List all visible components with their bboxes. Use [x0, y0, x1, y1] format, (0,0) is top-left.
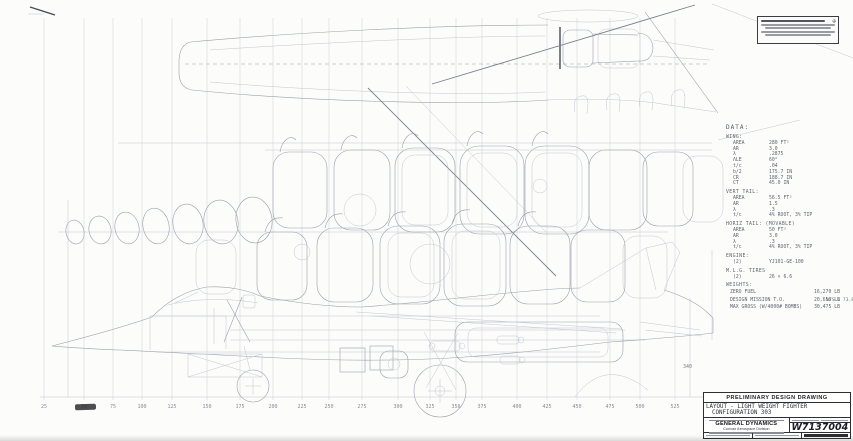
stamp-text-line [765, 27, 831, 29]
construction-lines [28, 7, 800, 397]
stamp-text-line [765, 34, 831, 36]
station-label: 525 [670, 404, 679, 410]
station-label: 200 [268, 404, 277, 410]
data-block: DATA: WING:AREA280 FT²AR3.0λ.2875ΛLE60°t… [726, 124, 850, 314]
data-row: (2)26 × 6.6 [726, 275, 850, 281]
data-row: t/c4% ROOT, 3% TIP [726, 213, 850, 219]
blueprint-sheet: ⊕ DATA: WING:AREA280 FT²AR3.0λ.2875ΛLE60… [0, 0, 853, 441]
stamp-seal-icon: ⊕ [832, 19, 836, 25]
station-label: 350 [451, 404, 460, 410]
station-label: 325 [425, 404, 434, 410]
title-block-header: PRELIMINARY DESIGN DRAWING [704, 393, 850, 403]
data-row: ZERO FUEL16,270 LB [726, 289, 850, 296]
data-row: t/c4% ROOT, 3% TIP [726, 245, 850, 251]
drawing-title-line2: CONFIGURATION 303 [704, 410, 850, 418]
stamp-text-line [761, 31, 835, 33]
station-label: 375 [477, 404, 486, 410]
data-section: M.L.G. TIRES(2)26 × 6.6 [726, 269, 850, 281]
station-label: 300 [393, 404, 402, 410]
title-block: PRELIMINARY DESIGN DRAWING LAYOUT - LIGH… [703, 392, 851, 439]
side-view [52, 242, 713, 417]
station-label: 75 [110, 404, 116, 410]
station-label: 250 [324, 404, 333, 410]
station-label: 175 [235, 404, 244, 410]
drawing-title-line1: LAYOUT - LIGHT WEIGHT FIGHTER [704, 403, 850, 410]
station-label: 400 [512, 404, 521, 410]
station-label: 425 [542, 404, 551, 410]
station-label: 150 [202, 404, 211, 410]
cross-sections [64, 90, 723, 306]
company-cell: GENERAL DYNAMICS Convair Aerospace Divis… [704, 418, 790, 432]
station-label: 500 [635, 404, 644, 410]
station-label: 475 [605, 404, 614, 410]
stamp-text-line [761, 20, 825, 22]
station-label: 25 [41, 404, 47, 410]
ink-smudge [75, 404, 96, 411]
data-block-heading: DATA: [726, 124, 850, 131]
title-block-footer [704, 433, 850, 439]
data-section: WEIGHTS:ZERO FUEL16,270 LBDESIGN MISSION… [726, 283, 850, 311]
footer-cell [704, 433, 753, 439]
data-row: CT45.0 IN [726, 181, 850, 187]
data-section: WING:AREA280 FT²AR3.0λ.2875ΛLE60°t/c.04b… [726, 135, 850, 187]
approval-stamp: ⊕ [757, 16, 839, 44]
data-row: (2)YJ101-GE-100 [726, 260, 850, 266]
footer-cell [753, 433, 802, 439]
footer-cell-stamped [802, 433, 850, 439]
data-section: ENGINE:(2)YJ101-GE-100 [726, 254, 850, 266]
drawing-number-cell: W7137004 [790, 418, 850, 432]
station-label: 100 [137, 404, 146, 410]
station-label: 125 [167, 404, 176, 410]
wing-loading-note: W/S = 73.8 [826, 298, 853, 303]
station-label: 450 [572, 404, 581, 410]
data-section: VERT TAIL:AREA56.5 FT²AR1.5λ.3t/c4% ROOT… [726, 190, 850, 219]
drawing-number: W7137004 [790, 423, 850, 433]
data-section: HORIZ TAIL: (MOVABLE)AREA50 FT²AR3.0λ.3t… [726, 222, 850, 251]
station-label: 275 [357, 404, 366, 410]
stamp-text-line [761, 24, 835, 26]
plan-view [179, 10, 716, 112]
station-grid-lines [44, 18, 675, 400]
data-block-sections: WING:AREA280 FT²AR3.0λ.2875ΛLE60°t/c.04b… [726, 135, 850, 311]
company-division: Convair Aerospace Division [704, 427, 789, 431]
fin-station-label: 340 [683, 364, 692, 370]
data-row: MAX GROSS (W/4000# BOMBS)30,475 LB [726, 304, 850, 311]
station-label: 225 [297, 404, 306, 410]
